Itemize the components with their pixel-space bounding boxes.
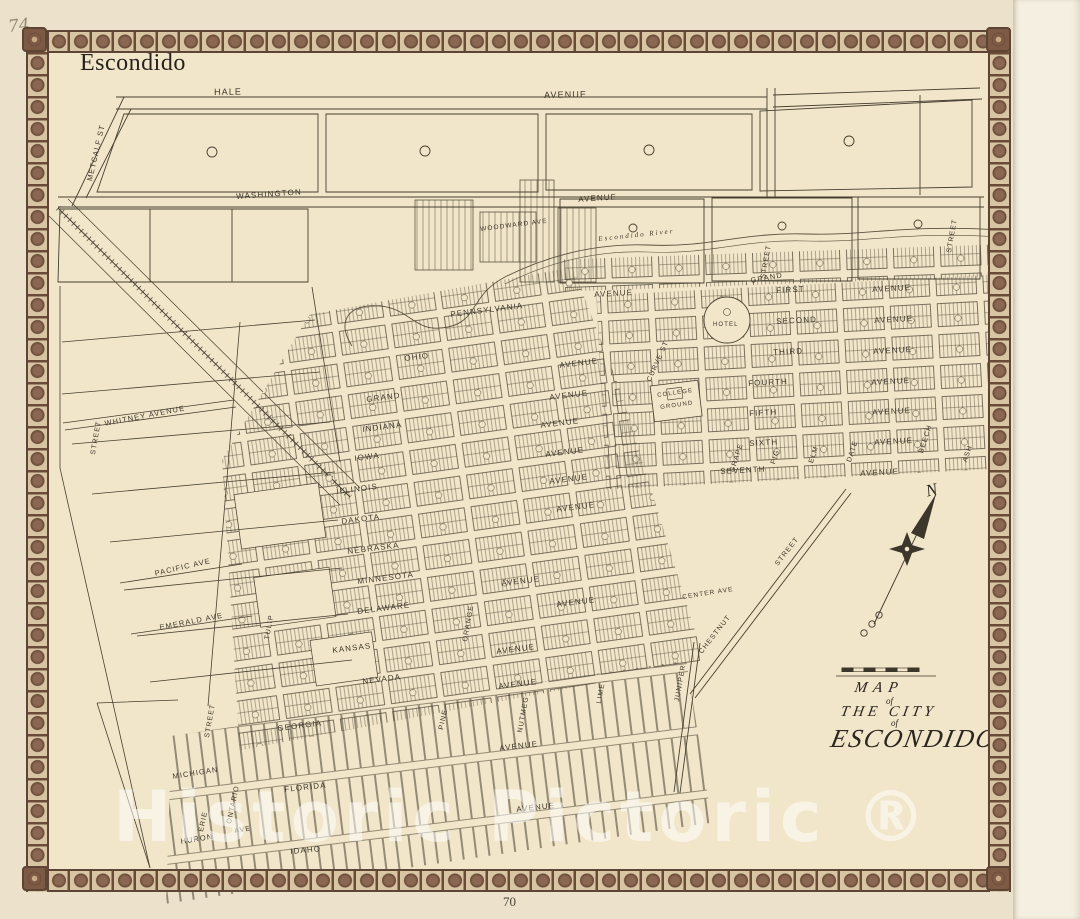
street-label: GRAND [750, 271, 783, 284]
street-label: PINE [438, 709, 449, 731]
street-label: STREET [946, 218, 959, 253]
street-label: AVENUE [556, 596, 596, 609]
college-ground-label: GROUND [660, 400, 694, 411]
street-label: AVENUE [872, 284, 911, 294]
street-label: NEVADA [362, 673, 402, 686]
street-label: DELAWARE [357, 602, 411, 616]
street-label: WOODWARD AVE [480, 219, 548, 234]
street-label: SECOND [776, 316, 817, 326]
street-label: ASH [962, 444, 974, 463]
street-label: DATE [846, 440, 860, 464]
street-label: STREET [90, 420, 103, 455]
street-label: LIME [596, 683, 606, 705]
street-label: GEORGIA [277, 720, 323, 733]
street-label: AVENUE [545, 446, 585, 459]
border-corner [986, 27, 1011, 52]
street-label: FOURTH [748, 378, 788, 388]
river-label: Escondido River [598, 228, 675, 243]
street-label: PENNSYLVANIA [450, 302, 524, 319]
street-label: AVENUE [874, 437, 913, 447]
street-label: AVENUE [594, 289, 633, 299]
map-title-line5: ESCONDIDO [828, 726, 999, 752]
street-label: ILLINOIS [336, 483, 378, 496]
street-label: NUTMEG [517, 696, 530, 734]
street-label: NEBRASKA [347, 542, 400, 556]
border-left [26, 30, 49, 892]
street-label: FIFTH [749, 409, 778, 418]
street-label: DAKOTA [341, 513, 381, 526]
street-label: AVENUE [873, 346, 912, 356]
street-label: KANSAS [332, 642, 372, 655]
street-label: CURVE ST [646, 340, 670, 383]
street-label: AVENUE [860, 468, 899, 478]
street-label: STREET [204, 703, 217, 738]
street-label: JUNIPER [674, 664, 687, 702]
street-label: PACIFIC AVE [154, 557, 211, 577]
street-label: ELM [808, 445, 820, 464]
street-label: METCALF ST [86, 124, 106, 182]
street-label: CHESTNUT [698, 614, 732, 655]
street-label: AVENUE [559, 357, 599, 370]
street-label: WHITNEY AVENUE [104, 404, 186, 427]
street-label: AVENUE [501, 575, 541, 588]
street-label: WASHINGTON [236, 188, 302, 201]
border-right [988, 30, 1011, 892]
hotel-label: HOTEL [713, 322, 739, 328]
street-label: EMERALD AVE [159, 612, 224, 632]
street-label: BEECH [918, 424, 934, 454]
street-label: AVENUE [556, 501, 596, 514]
street-label: HALE [214, 88, 242, 97]
street-label: SIXTH [749, 438, 778, 448]
street-label: INDIANA [362, 421, 403, 434]
street-label: GRAND [366, 392, 401, 404]
street-label: AVENUE [496, 643, 536, 656]
street-label: OHIO [404, 352, 430, 363]
college-ground-label: COLLEGE [657, 388, 694, 399]
street-label: CENTER AVE [682, 587, 734, 602]
map-title-line1: MAP [853, 681, 904, 696]
border-bottom [26, 869, 1011, 892]
street-label: AVENUE [549, 473, 589, 486]
street-label: AVENUE [544, 90, 587, 100]
street-label: AVENUE [871, 377, 910, 387]
street-label: ORANGE [462, 605, 475, 643]
street-label: SEVENTH [720, 466, 766, 476]
street-label: TULIP [264, 614, 275, 640]
street-label: STREET [774, 536, 801, 567]
street-label: MINNESOTA [357, 571, 414, 586]
paper-edge [1013, 0, 1080, 919]
border-corner [22, 27, 47, 52]
map-title-line3: THE CITY [839, 705, 937, 720]
border-corner [22, 866, 47, 891]
street-label: AVENUE [499, 740, 539, 753]
street-label: IOWA [354, 452, 380, 463]
map-sheet: Escondido 74 HALE AVENUE METCALF ST WASH… [0, 0, 1080, 919]
street-label: AVENUE [578, 193, 617, 204]
street-label: THIRD [773, 347, 803, 357]
street-label: AVENUE [540, 417, 580, 430]
street-label: AVENUE [549, 389, 589, 402]
border-top [26, 30, 1011, 53]
street-label: FIRST [776, 286, 805, 295]
border-corner [986, 866, 1011, 891]
watermark-text: Historic Pictoric ® [113, 776, 931, 858]
street-label: AVENUE [874, 315, 913, 325]
street-label: AVENUE [872, 407, 911, 417]
page-number: 70 [503, 894, 516, 910]
street-label: FIG [770, 449, 781, 465]
street-label: AVENUE [498, 678, 538, 691]
